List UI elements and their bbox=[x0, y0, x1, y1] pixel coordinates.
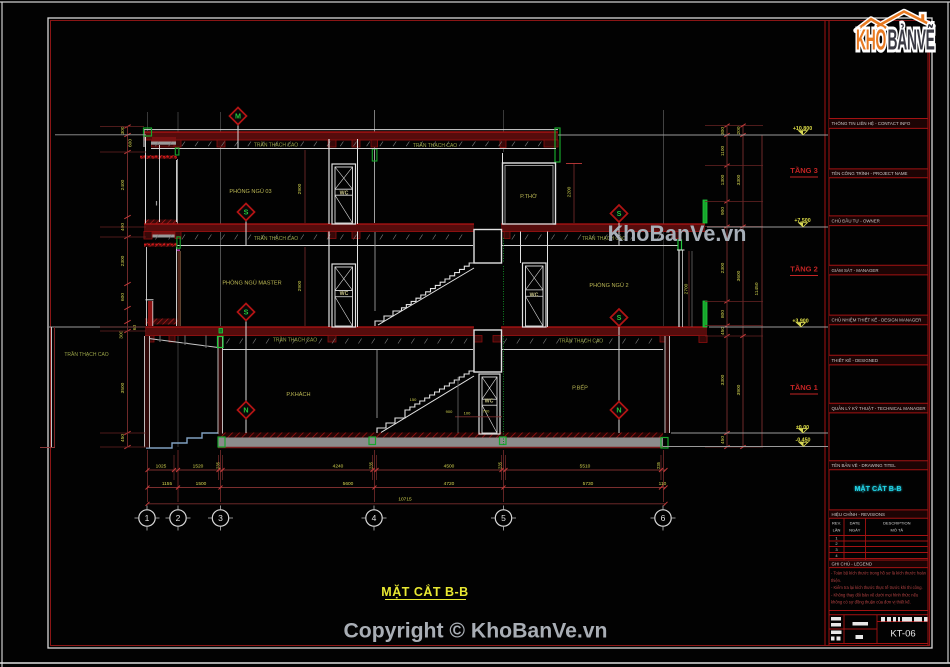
svg-text:HIỆU CHỈNH - REVISIONS: HIỆU CHỈNH - REVISIONS bbox=[832, 512, 885, 517]
svg-text:1100: 1100 bbox=[720, 146, 726, 157]
svg-text:3500: 3500 bbox=[120, 382, 126, 393]
svg-text:4: 4 bbox=[372, 513, 377, 523]
svg-text:TÊN CÔNG TRÌNH - PROJECT NAME: TÊN CÔNG TRÌNH - PROJECT NAME bbox=[832, 171, 908, 176]
svg-text:P.THỜ: P.THỜ bbox=[520, 193, 537, 200]
svg-text:thiện.: thiện. bbox=[831, 578, 841, 583]
svg-text:CHỦ NHIỆM THIẾT KẾ - DESIGN MA: CHỦ NHIỆM THIẾT KẾ - DESIGN MANAGER bbox=[832, 318, 922, 323]
svg-text:TRẦN THẠCH CAO: TRẦN THẠCH CAO bbox=[273, 337, 317, 344]
svg-text:MẶT CẮT B-B: MẶT CẮT B-B bbox=[381, 584, 468, 599]
svg-text:MÔ TẢ: MÔ TẢ bbox=[891, 528, 904, 533]
svg-text:LẦN: LẦN bbox=[833, 528, 841, 533]
svg-text:450: 450 bbox=[720, 327, 726, 335]
svg-text:GHI CHÚ - LEGEND: GHI CHÚ - LEGEND bbox=[832, 562, 873, 567]
svg-text:GIÁM SÁT - MANAGER: GIÁM SÁT - MANAGER bbox=[832, 268, 879, 273]
svg-text:5510: 5510 bbox=[580, 464, 591, 470]
svg-text:450: 450 bbox=[120, 434, 126, 442]
svg-text:150: 150 bbox=[410, 397, 417, 402]
svg-text:BẢNVẼ: BẢNVẼ bbox=[888, 24, 935, 56]
svg-text:3300: 3300 bbox=[736, 174, 742, 185]
svg-text:300: 300 bbox=[119, 330, 125, 338]
svg-text:WC: WC bbox=[340, 191, 349, 197]
svg-text:- Không thay đổi bản vẽ dưới m: - Không thay đổi bản vẽ dưới mọi hình th… bbox=[831, 592, 918, 597]
svg-text:1155: 1155 bbox=[162, 481, 173, 487]
svg-text:4240: 4240 bbox=[333, 464, 344, 470]
svg-text:4500: 4500 bbox=[444, 464, 455, 470]
svg-text:DATE: DATE bbox=[850, 521, 861, 526]
svg-text:P.KHÁCH: P.KHÁCH bbox=[286, 391, 310, 398]
svg-text:S: S bbox=[244, 208, 249, 217]
svg-text:S: S bbox=[617, 209, 622, 218]
svg-text:235: 235 bbox=[369, 461, 374, 469]
svg-text:P.BẾP: P.BẾP bbox=[572, 385, 588, 392]
svg-text:2700: 2700 bbox=[684, 283, 690, 294]
svg-text:2400: 2400 bbox=[120, 179, 126, 190]
svg-text:200: 200 bbox=[736, 126, 742, 134]
svg-text:M: M bbox=[235, 112, 241, 121]
svg-text:1: 1 bbox=[145, 513, 150, 523]
svg-text:700: 700 bbox=[483, 409, 490, 414]
svg-text:TRẦN THẠCH CAO: TRẦN THẠCH CAO bbox=[413, 142, 457, 149]
svg-text:WC: WC bbox=[485, 399, 494, 405]
svg-text:PHÒNG NGỦ 2: PHÒNG NGỦ 2 bbox=[589, 282, 628, 289]
svg-text:600: 600 bbox=[128, 139, 134, 147]
svg-text:PHÒNG NGỦ 03: PHÒNG NGỦ 03 bbox=[229, 188, 271, 195]
svg-text:900: 900 bbox=[720, 207, 726, 215]
svg-text:N: N bbox=[243, 406, 248, 415]
svg-text:WC: WC bbox=[340, 291, 349, 297]
svg-text:CHỦ ĐẦU TƯ - OWNER: CHỦ ĐẦU TƯ - OWNER bbox=[832, 218, 880, 223]
svg-text:235: 235 bbox=[498, 461, 503, 469]
svg-text:N: N bbox=[616, 406, 621, 415]
svg-text:2900: 2900 bbox=[297, 280, 303, 291]
svg-text:WC: WC bbox=[530, 293, 539, 299]
svg-text:11450: 11450 bbox=[754, 282, 760, 295]
svg-text:TRẦN THẠCH CAO: TRẦN THẠCH CAO bbox=[254, 235, 298, 242]
svg-text:Copyright © KhoBanVe.vn: Copyright © KhoBanVe.vn bbox=[344, 620, 608, 643]
svg-text:3600: 3600 bbox=[736, 270, 742, 281]
svg-text:KT-06: KT-06 bbox=[890, 629, 915, 640]
svg-text:REV.: REV. bbox=[832, 521, 841, 526]
svg-text:TRẦN THẠCH CAO: TRẦN THẠCH CAO bbox=[254, 142, 298, 149]
svg-text:THIẾT KẾ - DESIGNED: THIẾT KẾ - DESIGNED bbox=[832, 358, 879, 363]
svg-text:1520: 1520 bbox=[193, 464, 204, 470]
svg-text:235: 235 bbox=[216, 461, 221, 469]
svg-text:- Kiểm tra lại kích thước thực: - Kiểm tra lại kích thước thực tế trước … bbox=[831, 585, 923, 590]
svg-text:2300: 2300 bbox=[720, 262, 726, 273]
svg-text:3300: 3300 bbox=[720, 374, 726, 385]
svg-text:235: 235 bbox=[656, 461, 661, 469]
svg-text:4720: 4720 bbox=[444, 481, 455, 487]
svg-text:6: 6 bbox=[661, 513, 666, 523]
svg-text:300: 300 bbox=[720, 127, 726, 135]
svg-text:QUẢN LÝ KỸ THUẬT - TECHNICAL M: QUẢN LÝ KỸ THUẬT - TECHNICAL MANAGER bbox=[832, 406, 926, 411]
svg-text:KHO: KHO bbox=[856, 24, 886, 56]
svg-text:DESCRIPTION: DESCRIPTION bbox=[883, 521, 910, 526]
svg-text:TẦNG 1: TẦNG 1 bbox=[790, 382, 818, 392]
svg-text:2: 2 bbox=[176, 513, 181, 523]
svg-text:110: 110 bbox=[659, 481, 667, 487]
svg-text:800: 800 bbox=[720, 310, 726, 318]
svg-text:TRẦN THẠCH CAO: TRẦN THẠCH CAO bbox=[559, 338, 603, 345]
svg-text:2900: 2900 bbox=[297, 183, 303, 194]
svg-text:không có sự đồng thuận của đơn: không có sự đồng thuận của đơn vị thiết … bbox=[831, 600, 911, 605]
svg-text:NGÀY: NGÀY bbox=[849, 528, 861, 533]
svg-text:PHÒNG NGỦ MASTER: PHÒNG NGỦ MASTER bbox=[222, 280, 281, 287]
svg-text:2300: 2300 bbox=[120, 255, 126, 266]
svg-text:5730: 5730 bbox=[583, 481, 594, 487]
svg-text:900: 900 bbox=[446, 409, 453, 414]
svg-text:5: 5 bbox=[501, 513, 506, 523]
svg-text:S: S bbox=[244, 308, 249, 317]
svg-text:300: 300 bbox=[120, 126, 126, 134]
svg-text:S: S bbox=[617, 313, 622, 322]
svg-text:TẦNG 2: TẦNG 2 bbox=[790, 264, 818, 274]
svg-text:TẦNG 3: TẦNG 3 bbox=[790, 165, 818, 175]
svg-text:1025: 1025 bbox=[156, 464, 167, 470]
svg-text:MẶT CẮT B-B: MẶT CẮT B-B bbox=[854, 484, 901, 493]
svg-text:KhoBanVe.vn: KhoBanVe.vn bbox=[608, 221, 747, 246]
svg-text:450: 450 bbox=[720, 436, 726, 444]
svg-text:100: 100 bbox=[464, 411, 471, 416]
svg-text:1300: 1300 bbox=[720, 174, 726, 185]
svg-text:1500: 1500 bbox=[196, 481, 207, 487]
svg-text:600: 600 bbox=[120, 293, 126, 301]
svg-text:TRẦN THẠCH CAO: TRẦN THẠCH CAO bbox=[64, 351, 108, 358]
svg-text:2200: 2200 bbox=[567, 186, 573, 197]
svg-text:3900: 3900 bbox=[736, 384, 742, 395]
svg-text:3: 3 bbox=[218, 513, 223, 523]
svg-text:- Toàn bộ kích thước trong hồ: - Toàn bộ kích thước trong hồ sơ là kích… bbox=[831, 571, 927, 576]
svg-text:TÊN BẢN VẼ - DRAWING TITEL: TÊN BẢN VẼ - DRAWING TITEL bbox=[832, 463, 897, 468]
svg-text:10715: 10715 bbox=[398, 497, 412, 503]
svg-text:THÔNG TIN LIÊN HỆ - CONTACT IN: THÔNG TIN LIÊN HỆ - CONTACT INFO bbox=[832, 121, 911, 126]
svg-text:5600: 5600 bbox=[343, 481, 354, 487]
